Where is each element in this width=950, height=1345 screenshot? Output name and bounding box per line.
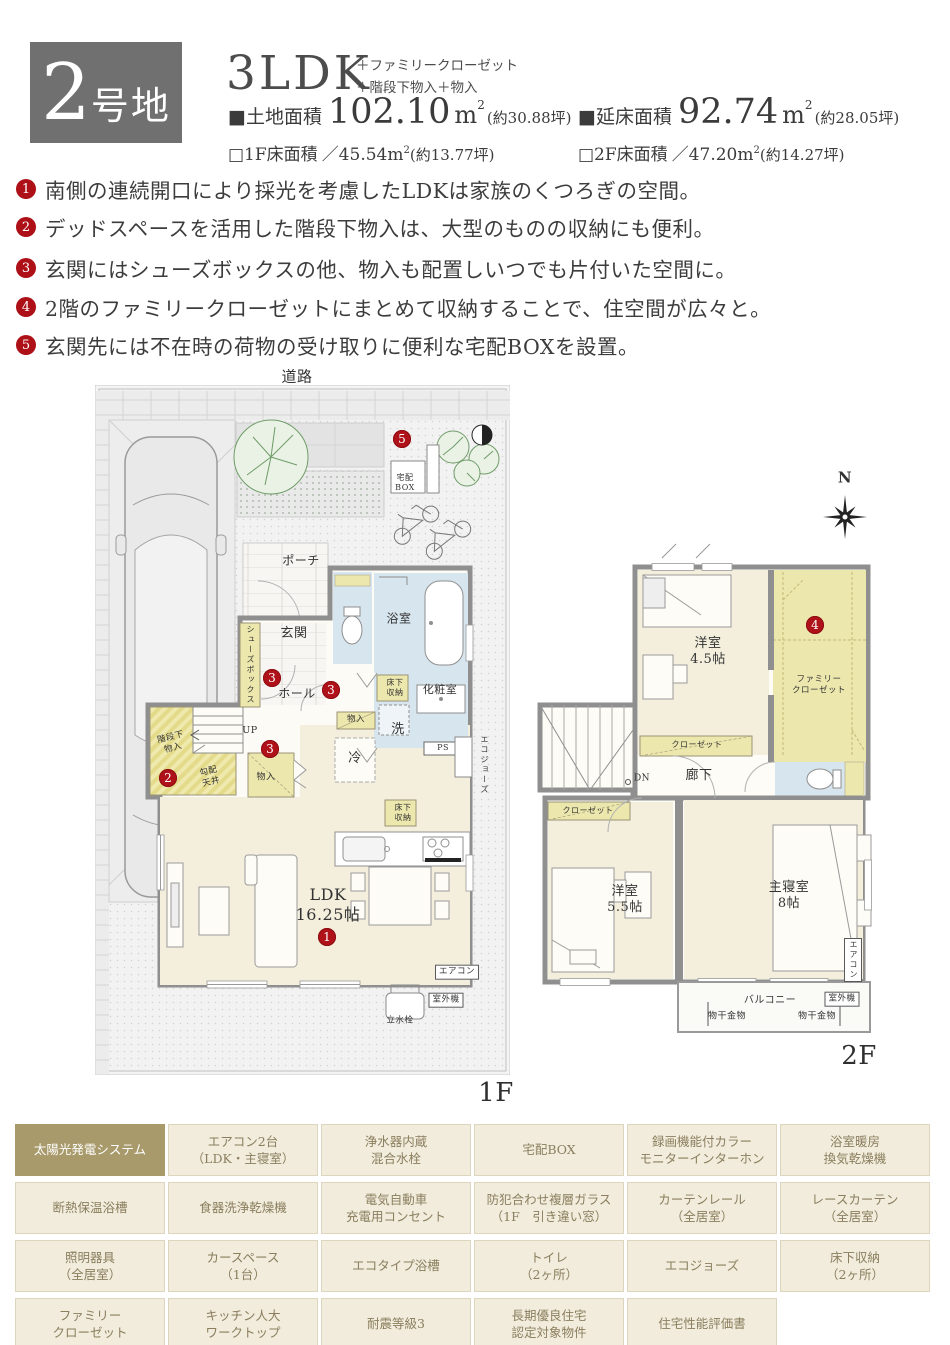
total-floor-area: ■延床面積 92.74 m2 (約28.05坪): [578, 92, 899, 132]
feature-underfloor-storage: 床下収納 （2ヶ所）: [780, 1240, 930, 1292]
feature-toilets: トイレ （2ヶ所）: [474, 1240, 624, 1292]
marker-3c: 3: [261, 740, 279, 758]
floor2-area-value: ／47.20m2: [672, 140, 760, 165]
land-area: ■土地面積 102.10 m2 (約30.88坪): [228, 92, 571, 132]
porch-label: ポーチ: [282, 554, 320, 569]
toilet-icon-2f: [807, 769, 841, 789]
total-area-label: ■延床面積: [578, 102, 672, 129]
aircon-label-2f: エアコン: [844, 938, 862, 982]
stairs-1f: [191, 707, 243, 753]
point-text: 玄関先には不在時の荷物の受け取りに便利な宅配BOXを設置。: [45, 330, 639, 360]
storage-label-2: 物入: [256, 772, 275, 783]
eco-jozu-label-plan: エコジョーズ: [479, 735, 489, 795]
marker-5: 5: [393, 430, 411, 448]
floor1-area: □1F床面積 ／45.54m2 (約13.77坪): [228, 140, 495, 165]
family-closet-label: ファミリー クローゼット: [792, 674, 846, 695]
point-number: 5: [16, 335, 36, 355]
aircon-label-1f: エアコン: [435, 965, 479, 980]
fridge-label: 冷: [348, 751, 362, 767]
stairs-up-label: UP: [242, 725, 257, 737]
north-label: N: [838, 469, 852, 488]
feature-family-closet: ファミリー クローゼット: [15, 1298, 165, 1345]
total-area-tsubo: (約28.05坪): [815, 107, 900, 128]
room-5-5-label: 洋室 5.5帖: [607, 884, 643, 917]
toilet-icon: [342, 607, 362, 644]
feature-ev-outlet: 電気自動車 充電用コンセント: [321, 1182, 471, 1234]
laundry-label: 洗: [391, 722, 405, 738]
ps-label: PS: [437, 743, 449, 753]
lot-number: 2: [41, 54, 91, 132]
feature-seismic-grade: 耐震等級3: [321, 1298, 471, 1345]
selling-point-5: 5 玄関先には不在時の荷物の受け取りに便利な宅配BOXを設置。: [16, 330, 639, 360]
point-number: 1: [16, 179, 36, 199]
faucet-label: 立水栓: [386, 1016, 413, 1027]
point-number: 2: [16, 217, 36, 237]
feature-curtain-rail: カーテンレール （全居室）: [627, 1182, 777, 1234]
site-symbol: [472, 425, 492, 445]
underfloor-storage-label-2: 床下 収納: [395, 803, 412, 823]
feature-water-purifier: 浄水器内蔵 混合水栓: [321, 1124, 471, 1176]
feature-lace-curtain: レースカーテン （全居室）: [780, 1182, 930, 1234]
feature-aircon: エアコン2台 （LDK・主寝室）: [168, 1124, 318, 1176]
flyer-page: 2 号地 3LDK ＋ファミリークローゼット ＋階段下物入＋物入 ■土地面積 1…: [0, 0, 950, 1345]
land-area-tsubo: (約30.88坪): [487, 107, 572, 128]
bath-label: 浴室: [386, 612, 411, 627]
feature-security-glass: 防犯合わせ複層ガラス （1F 引き違い窓）: [474, 1182, 624, 1234]
feature-kitchen-worktop: キッチン人大 ワークトップ: [168, 1298, 318, 1345]
land-area-value: 102.10: [328, 92, 450, 132]
lot-suffix: 号地: [91, 61, 171, 125]
marker-3a: 3: [263, 669, 281, 687]
hanger-label-2: 物干金物: [798, 1011, 836, 1022]
entrance-label: 玄関: [280, 626, 307, 642]
total-area-unit: m2: [782, 98, 812, 129]
hall-label: ホール: [278, 687, 316, 702]
kitchen-counter: [335, 832, 470, 866]
marker-1: 1: [318, 928, 336, 946]
floor2-area: □2F床面積 ／47.20m2 (約14.27坪): [578, 140, 845, 165]
feature-dishwasher: 食器洗浄乾燥機: [168, 1182, 318, 1234]
selling-point-4: 4 2階のファミリークローゼットにまとめて収納することで、住空間が広々と。: [16, 292, 771, 322]
selling-point-3: 3 玄関にはシューズボックスの他、物入も配置しいつでも片付いた空間に。: [16, 253, 736, 283]
feature-performance-report: 住宅性能評価書: [627, 1298, 777, 1345]
feature-intercom: 録画機能付カラー モニターインターホン: [627, 1124, 777, 1176]
room-4-5-label: 洋室 4.5帖: [690, 636, 726, 669]
outdoor-unit-label-2f: 室外機: [824, 992, 859, 1007]
storage-label-1: 物入: [347, 715, 365, 726]
delivery-box-label: 宅配 BOX: [395, 473, 415, 493]
land-area-label: ■土地面積: [228, 102, 322, 129]
floorplan-2f-drawing: [530, 440, 950, 1060]
selling-point-2: 2 デッドスペースを活用した階段下物入は、大型のものの収納にも便利。: [16, 212, 715, 242]
feature-eco-tub: エコタイプ浴槽: [321, 1240, 471, 1292]
feature-car-space: カースペース （1台）: [168, 1240, 318, 1292]
selling-point-1: 1 南側の連続開口により採光を考慮したLDKは家族のくつろぎの空間。: [16, 174, 700, 204]
floor-label-2f: 2F: [841, 1040, 877, 1073]
marker-3b: 3: [322, 681, 340, 699]
feature-bath-dryer: 浴室暖房 換気乾燥機: [780, 1124, 930, 1176]
stairs-down-label: DN: [634, 773, 650, 784]
floor2-area-tsubo: (約14.27坪): [760, 144, 845, 165]
point-text: 南側の連続開口により採光を考慮したLDKは家族のくつろぎの空間。: [45, 174, 700, 204]
floor1-area-tsubo: (約13.77坪): [410, 144, 495, 165]
total-area-value: 92.74: [678, 92, 778, 132]
lot-number-badge: 2 号地: [30, 42, 182, 143]
point-number: 4: [16, 297, 36, 317]
shoes-box-label: シューズボックス: [245, 625, 255, 705]
outdoor-unit-label-1f: 室外機: [428, 993, 463, 1008]
compass-icon: [823, 495, 867, 539]
feature-delivery-box: 宅配BOX: [474, 1124, 624, 1176]
point-text: デッドスペースを活用した階段下物入は、大型のものの収納にも便利。: [45, 212, 715, 242]
balcony-label: バルコニー: [744, 995, 796, 1008]
underfloor-storage-label-1: 床下 収納: [387, 678, 404, 698]
land-area-unit: m2: [454, 98, 484, 129]
powder-room-label: 化粧室: [423, 683, 458, 697]
closet-label-2: クローゼット: [563, 806, 614, 816]
point-text: 2階のファミリークローゼットにまとめて収納することで、住空間が広々と。: [45, 292, 771, 322]
floor-label-1f: 1F: [478, 1077, 514, 1110]
feature-solar: 太陽光発電システム: [15, 1124, 165, 1176]
marker-4: 4: [806, 616, 824, 634]
floor2-area-label: □2F床面積: [578, 140, 668, 165]
hanger-label-1: 物干金物: [708, 1011, 746, 1022]
feature-lighting: 照明器具 （全居室）: [15, 1240, 165, 1292]
road-label: 道路: [281, 368, 312, 387]
ldk-label: LDK 16.25帖: [296, 885, 361, 925]
point-number: 3: [16, 258, 36, 278]
feature-eco-jozu: エコジョーズ: [627, 1240, 777, 1292]
closet-label-1: クローゼット: [672, 740, 723, 750]
plan-extra-1: ＋ファミリークローゼット: [356, 56, 518, 78]
master-bedroom-label: 主寝室 8帖: [769, 880, 810, 913]
corridor-label: 廊下: [685, 768, 712, 784]
floor1-area-value: ／45.54m2: [322, 140, 410, 165]
feature-insulated-tub: 断熱保温浴槽: [15, 1182, 165, 1234]
feature-long-term-housing: 長期優良住宅 認定対象物件: [474, 1298, 624, 1345]
point-text: 玄関にはシューズボックスの他、物入も配置しいつでも片付いた空間に。: [45, 253, 736, 283]
marker-2: 2: [159, 769, 177, 787]
floor1-area-label: □1F床面積: [228, 140, 318, 165]
